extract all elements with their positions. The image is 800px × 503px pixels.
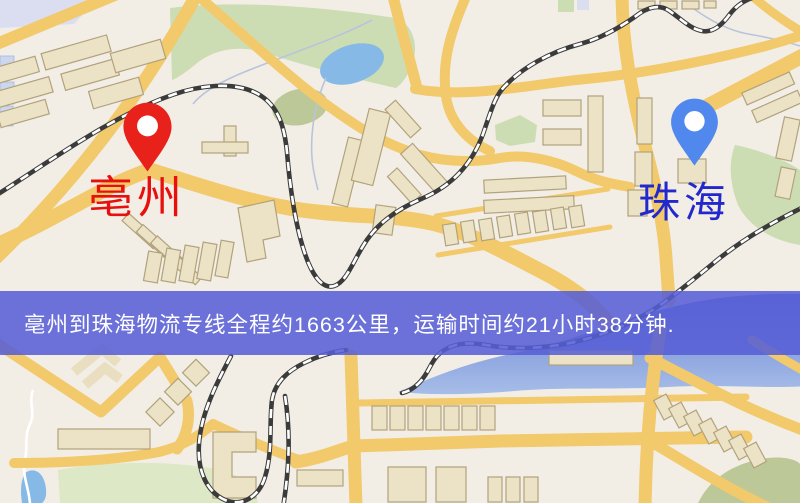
destination-pin-icon[interactable] [667, 97, 722, 168]
route-info-banner: 亳州到珠海物流专线全程约1663公里，运输时间约21小时38分钟. [0, 291, 800, 355]
route-info-text: 亳州到珠海物流专线全程约1663公里，运输时间约21小时38分钟. [0, 291, 800, 355]
map-graphics [0, 0, 800, 503]
origin-pin-icon[interactable] [119, 101, 176, 174]
origin-label: 亳州 [88, 175, 186, 220]
destination-label: 珠海 [638, 182, 730, 224]
map-canvas[interactable]: 亳州 珠海 亳州到珠海物流专线全程约1663公里，运输时间约21小时38分钟. [0, 0, 800, 503]
